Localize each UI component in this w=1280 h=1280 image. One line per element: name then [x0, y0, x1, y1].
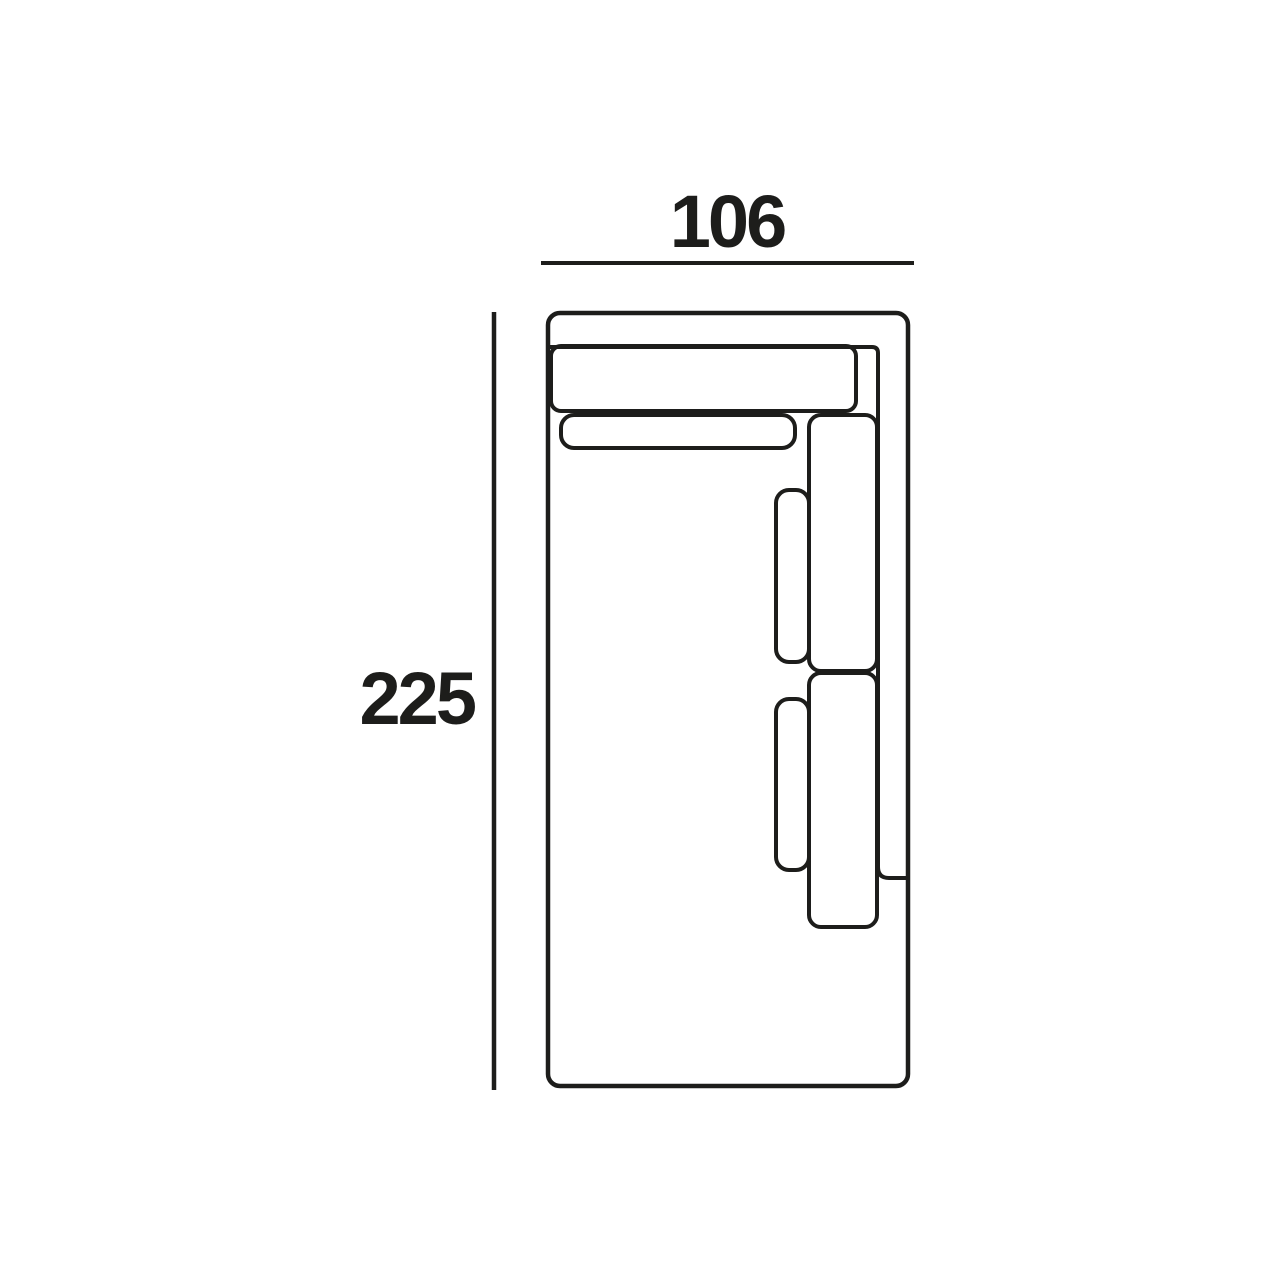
backrest-inner-edge: [548, 347, 908, 878]
diagram-canvas: 106 225: [0, 0, 1280, 1280]
sofa-outline: [548, 313, 908, 1086]
sofa-dimension-diagram: 106 225: [0, 0, 1280, 1280]
lumbar-cushion: [561, 415, 795, 448]
seat-cushion-bottom: [809, 673, 877, 927]
width-dimension-label: 106: [670, 180, 785, 263]
side-bolster-bottom: [776, 699, 809, 870]
depth-dimension-label: 225: [360, 657, 476, 740]
back-cushion: [551, 346, 856, 411]
side-bolster-top: [776, 490, 809, 662]
seat-cushion-top: [809, 415, 877, 671]
